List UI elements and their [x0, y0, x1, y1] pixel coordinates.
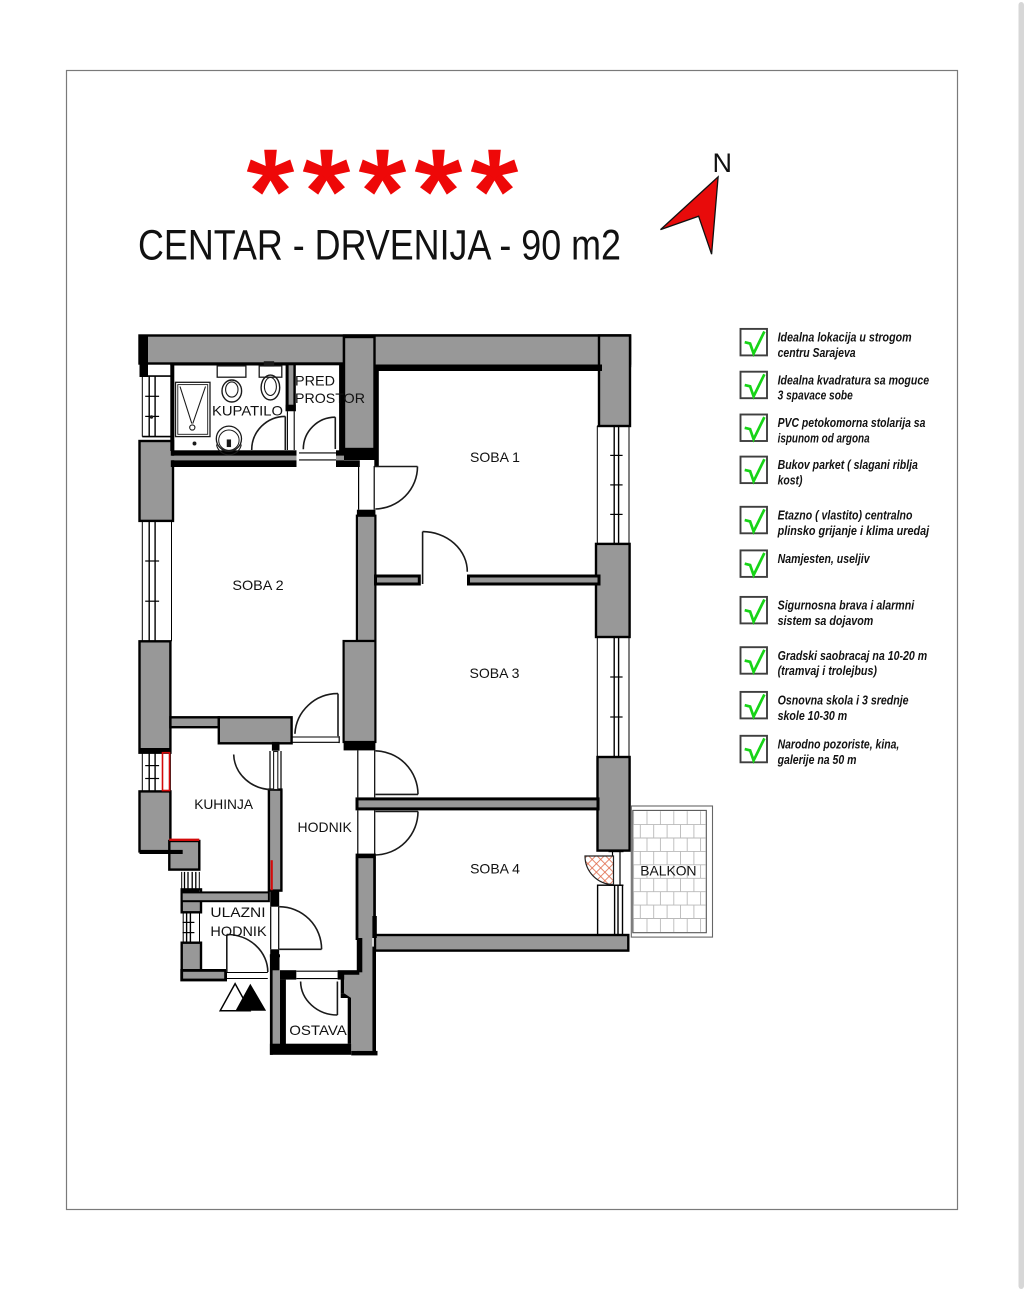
- svg-text:CENTAR - DRVENIJA - 90 m2: CENTAR - DRVENIJA - 90 m2: [138, 222, 621, 270]
- svg-text:KUHINJA: KUHINJA: [194, 796, 253, 812]
- svg-text:KUPATILO: KUPATILO: [212, 403, 283, 419]
- svg-text:kost): kost): [778, 473, 803, 488]
- svg-text:Namjesten, useljiv: Namjesten, useljiv: [778, 551, 871, 566]
- svg-text:skole 10-30 m: skole 10-30 m: [778, 708, 848, 723]
- svg-text:Etazno ( vlastito) centralno: Etazno ( vlastito) centralno: [778, 507, 913, 522]
- svg-text:SOBA 2: SOBA 2: [232, 577, 283, 593]
- svg-text:centru Sarajeva: centru Sarajeva: [778, 345, 856, 360]
- svg-text:SOBA 1: SOBA 1: [470, 449, 520, 465]
- svg-text:Narodno pozoriste, kina,: Narodno pozoriste, kina,: [778, 736, 900, 751]
- svg-text:PVC petokomorna stolarija sa: PVC petokomorna stolarija sa: [778, 415, 926, 430]
- svg-text:HODNIK: HODNIK: [210, 923, 267, 939]
- svg-text:ispunom od argona: ispunom od argona: [778, 431, 870, 446]
- svg-text:PRED: PRED: [295, 372, 335, 388]
- svg-text:SOBA 4: SOBA 4: [470, 861, 520, 877]
- svg-text:(tramvaj i trolejbus): (tramvaj i trolejbus): [778, 663, 877, 678]
- svg-text:Idealna lokacija u strogom: Idealna lokacija u strogom: [778, 330, 912, 345]
- svg-text:galerije na 50 m: galerije na 50 m: [777, 752, 857, 767]
- svg-text:N: N: [713, 148, 733, 178]
- svg-text:sistem sa dojavom: sistem sa dojavom: [778, 613, 874, 628]
- svg-text:Idealna kvadratura sa moguce: Idealna kvadratura sa moguce: [778, 372, 930, 387]
- svg-text:Gradski saobracaj na 10-20 m: Gradski saobracaj na 10-20 m: [778, 648, 928, 663]
- svg-text:PROSTOR: PROSTOR: [295, 390, 365, 406]
- svg-text:plinsko grijanje i klima ureda: plinsko grijanje i klima uredaj: [777, 523, 930, 538]
- svg-text:BALKON: BALKON: [640, 863, 696, 879]
- svg-text:ULAZNI: ULAZNI: [210, 904, 265, 920]
- svg-text:Bukov parket ( slagani riblja: Bukov parket ( slagani riblja: [778, 457, 918, 472]
- svg-text:3 spavace sobe: 3 spavace sobe: [778, 388, 853, 403]
- svg-text:SOBA 3: SOBA 3: [470, 665, 520, 681]
- svg-text:HODNIK: HODNIK: [298, 819, 353, 835]
- svg-text:OSTAVA: OSTAVA: [289, 1022, 347, 1038]
- svg-text:Osnovna skola i 3 srednje: Osnovna skola i 3 srednje: [778, 693, 909, 708]
- svg-text:Sigurnosna brava i alarmni: Sigurnosna brava i alarmni: [778, 598, 915, 613]
